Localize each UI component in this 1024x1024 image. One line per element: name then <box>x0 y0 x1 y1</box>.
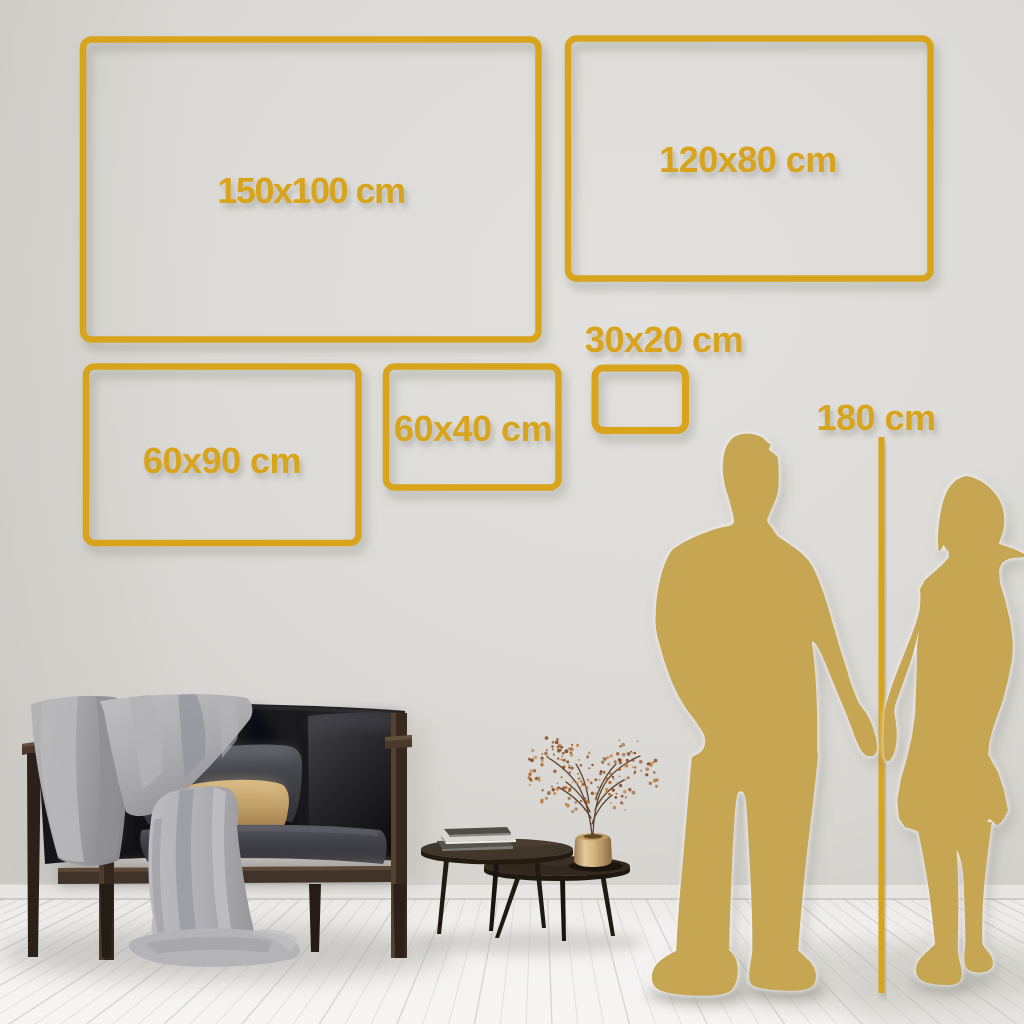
svg-text:120x80 cm: 120x80 cm <box>659 139 837 180</box>
svg-text:30x20 cm: 30x20 cm <box>585 319 743 360</box>
svg-text:180 cm: 180 cm <box>816 397 935 438</box>
svg-text:150x100 cm: 150x100 cm <box>217 170 404 211</box>
svg-text:60x40 cm: 60x40 cm <box>394 408 552 449</box>
svg-text:60x90 cm: 60x90 cm <box>143 440 301 481</box>
